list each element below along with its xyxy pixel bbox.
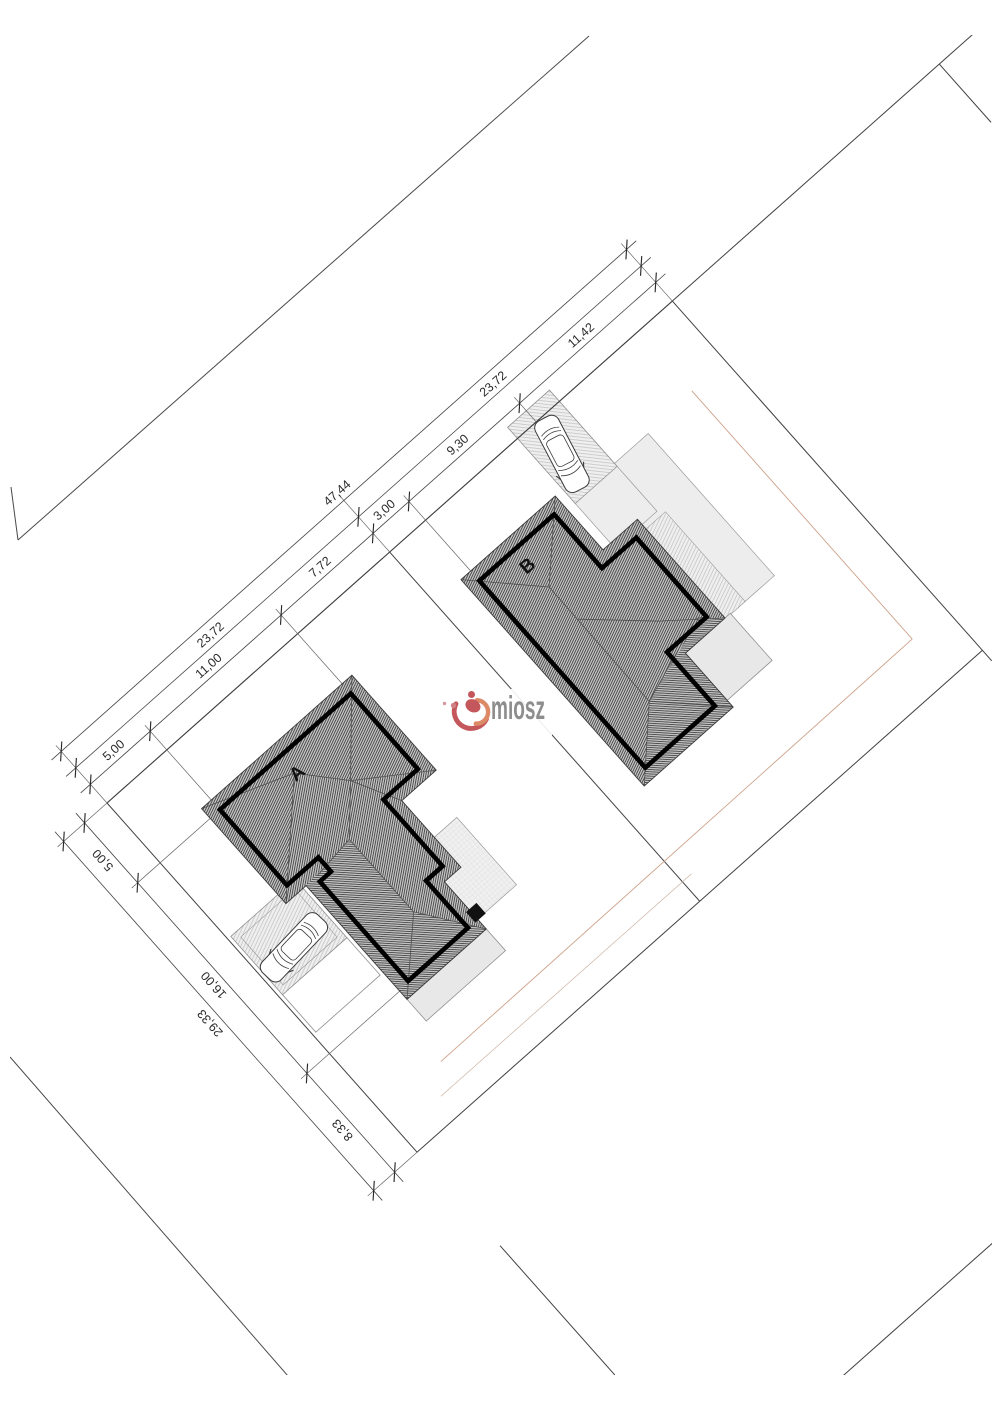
svg-text:miosz: miosz: [491, 689, 545, 726]
